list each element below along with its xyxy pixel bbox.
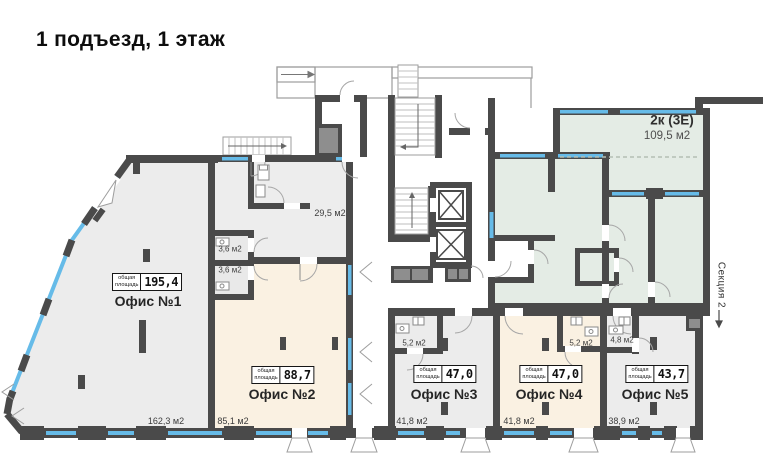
office-2-area: 85,1 м2 <box>217 416 248 426</box>
office-4-label: Офис №4 <box>516 386 583 402</box>
office-4-total: 47,0 <box>549 366 582 382</box>
upper-stairs-icon <box>398 65 418 97</box>
office-1-label: Офис №1 <box>115 293 182 309</box>
wc-a-area-label: 3,6 м2 <box>218 245 241 254</box>
stamp-caption: площадь <box>115 282 138 289</box>
stamp-caption: площадь <box>522 374 545 381</box>
entrance-steps-icon <box>223 137 291 155</box>
vestibule-area-label: 29,5 м2 <box>314 208 345 218</box>
office-5-stamp: общаяплощадь 43,7 <box>625 365 688 383</box>
stamp-caption: общая <box>254 368 277 375</box>
office-4-wc-area: 5,2 м2 <box>569 339 592 348</box>
office-2-stamp: общаяплощадь 88,7 <box>251 366 314 384</box>
stamp-caption: площадь <box>254 375 277 382</box>
door-swing-icon <box>287 438 695 452</box>
section-label: Секция 2 <box>716 262 727 308</box>
wc-b-area-label: 3,6 м2 <box>218 266 241 275</box>
stamp-caption: общая <box>522 367 545 374</box>
stamp-caption: общая <box>628 367 651 374</box>
office-5-total: 43,7 <box>655 366 688 382</box>
office-3-stamp: общаяплощадь 47,0 <box>413 365 476 383</box>
section-arrow-icon <box>716 310 722 327</box>
stamp-caption: площадь <box>416 374 439 381</box>
stamp-caption: общая <box>115 275 138 282</box>
office-4-area: 41,8 м2 <box>503 416 534 426</box>
office-1-area: 162,3 м2 <box>148 416 184 426</box>
page-title: 1 подъезд, 1 этаж <box>36 28 225 52</box>
apartment-area: 109,5 м2 <box>644 130 690 142</box>
office-3-label: Офис №3 <box>411 386 478 402</box>
office-2-label: Офис №2 <box>249 386 316 402</box>
elevator-icon <box>439 191 463 219</box>
elevator-icon <box>437 230 465 259</box>
office-1-total: 195,4 <box>141 274 181 290</box>
canopy-arrow-icon <box>281 72 314 78</box>
office-3-wc-area: 5,2 м2 <box>402 339 425 348</box>
office-3-total: 47,0 <box>443 366 476 382</box>
office-5-label: Офис №5 <box>622 386 689 402</box>
floor-plan: 1 подъезд, 1 этаж 2к (3Е) 109,5 м2 29,5 … <box>0 0 763 472</box>
office-1-stamp: общаяплощадь 195,4 <box>112 273 182 291</box>
apartment-hallway <box>495 241 531 278</box>
apartment-label: 2к (3Е) <box>650 113 694 128</box>
office-3-area: 41,8 м2 <box>396 416 427 426</box>
stamp-caption: площадь <box>628 374 651 381</box>
office-4-stamp: общаяплощадь 47,0 <box>519 365 582 383</box>
office-5-wc-area: 4,8 м2 <box>610 336 633 345</box>
office-2-total: 88,7 <box>281 367 314 383</box>
office-5-area: 38,9 м2 <box>608 416 639 426</box>
stamp-caption: общая <box>416 367 439 374</box>
